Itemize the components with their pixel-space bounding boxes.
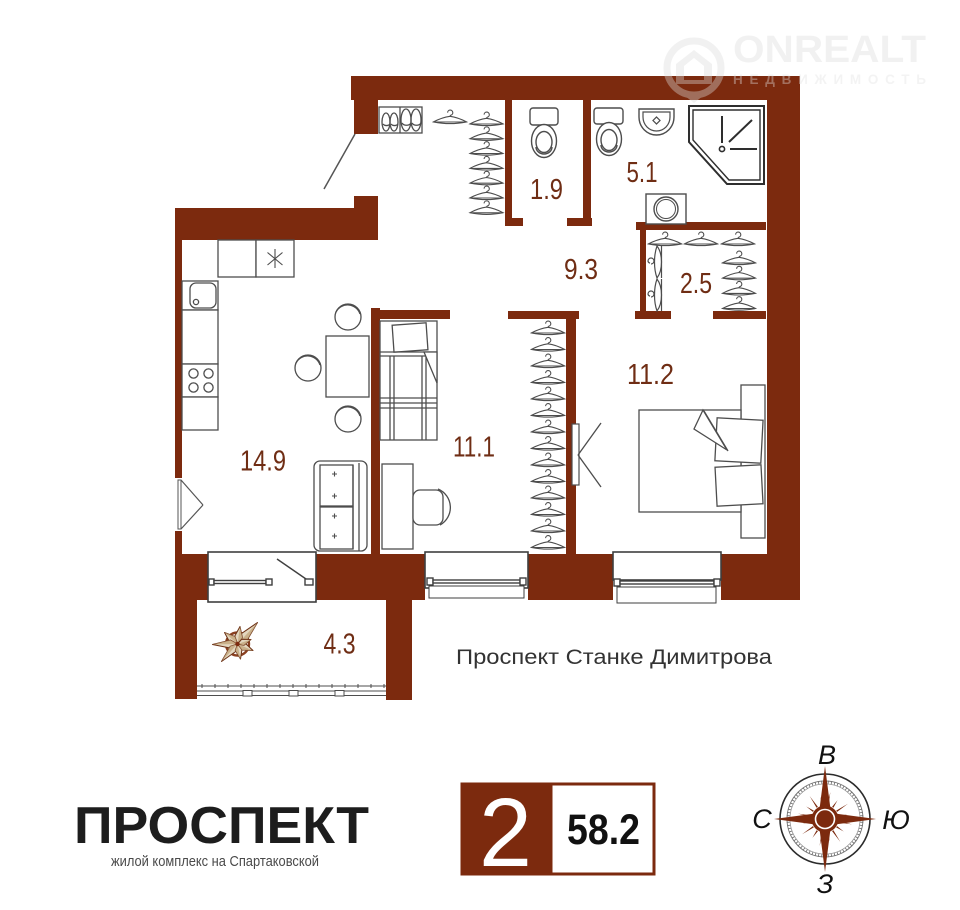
svg-text:11.2: 11.2 <box>627 359 674 391</box>
svg-text:С: С <box>752 804 772 834</box>
svg-text:жилой комплекс на Спартаковско: жилой комплекс на Спартаковской <box>111 853 319 870</box>
svg-text:4.3: 4.3 <box>324 629 356 661</box>
svg-text:58.2: 58.2 <box>567 806 640 854</box>
svg-text:11.1: 11.1 <box>453 432 495 464</box>
svg-text:5.1: 5.1 <box>627 157 658 189</box>
svg-text:З: З <box>817 869 834 899</box>
svg-text:2: 2 <box>479 778 532 887</box>
svg-text:14.9: 14.9 <box>240 446 286 478</box>
svg-text:9.3: 9.3 <box>564 254 598 286</box>
svg-text:1.9: 1.9 <box>530 174 563 206</box>
svg-text:Проспект Станке Димитрова: Проспект Станке Димитрова <box>456 645 772 669</box>
svg-text:В: В <box>818 740 836 770</box>
svg-text:2.5: 2.5 <box>680 268 712 300</box>
svg-text:ONREALT: ONREALT <box>733 29 926 71</box>
svg-text:Ю: Ю <box>882 805 910 835</box>
svg-text:ПРОСПЕКТ: ПРОСПЕКТ <box>74 797 369 855</box>
